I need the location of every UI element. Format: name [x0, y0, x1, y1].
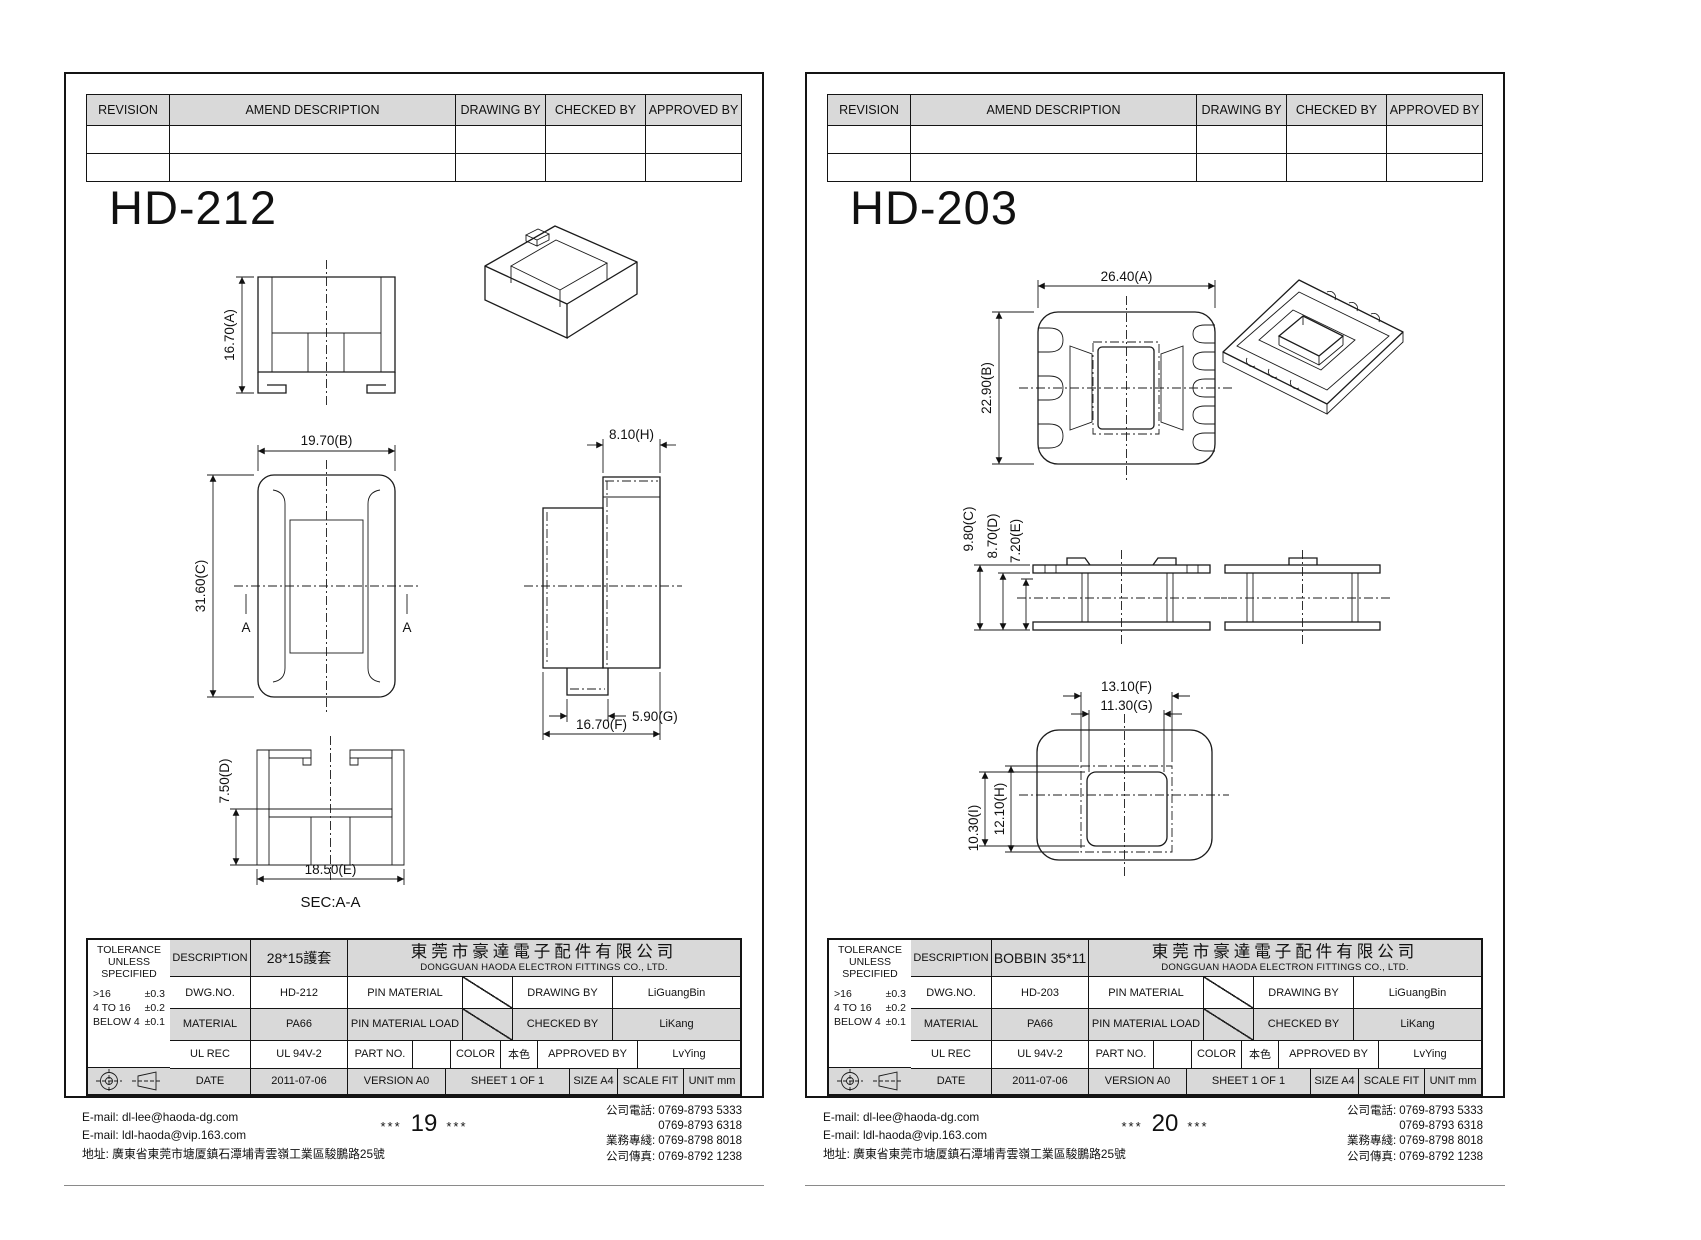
phone-block: 公司電話:0769-8793 5333 0769-8793 6318 業務專綫:…: [606, 1104, 742, 1165]
page-number: *** 20 ***: [1055, 1110, 1275, 1138]
dim-label-c: 9.80(C): [961, 506, 976, 551]
part-no-label: PART NO.: [347, 1041, 412, 1068]
page-bottom-edge: [805, 1185, 1505, 1186]
drawing-by-value: LiGuangBin: [1353, 977, 1481, 1008]
dwg-no-value: HD-203: [991, 977, 1088, 1008]
title-block: TOLERANCE UNLESS SPECIFIED >16±0.3 4 TO …: [827, 938, 1483, 1096]
pin-load-diagonal-cell: [462, 1009, 512, 1040]
version-cell: VERSION A0: [1088, 1069, 1186, 1094]
approved-by-label: APPROVED BY: [537, 1041, 637, 1068]
revision-table: REVISION AMEND DESCRIPTION DRAWING BY CH…: [827, 94, 1483, 182]
revision-empty-cell: [87, 125, 169, 153]
revision-empty-cell: [828, 153, 910, 181]
ul-rec-value: UL 94V-2: [250, 1041, 347, 1068]
projection-cone-icon: [130, 1069, 164, 1093]
color-value: 本色: [1241, 1041, 1278, 1068]
page-footer: E-mail: dl-lee@haoda-dg.com E-mail: ldl-…: [805, 1104, 1505, 1182]
section-label: SEC:A-A: [300, 894, 360, 911]
ul-rec-label: UL REC: [170, 1041, 250, 1068]
side-view-1: 9.80(C) 8.70(D) 7.20(E): [961, 506, 1227, 646]
size-cell: SIZE A4: [569, 1069, 617, 1094]
title-block: TOLERANCE UNLESS SPECIFIED >16±0.3 4 TO …: [86, 938, 742, 1096]
pin-material-label: PIN MATERIAL: [1088, 977, 1203, 1008]
dim-label-e: 7.20(E): [1008, 519, 1023, 563]
dim-label-f: 16.70(F): [576, 717, 627, 732]
isometric-view: [1223, 280, 1403, 414]
approved-by-label: APPROVED BY: [1278, 1041, 1378, 1068]
dim-label-g: 11.30(G): [1100, 698, 1152, 713]
section-marker-a-right: A: [402, 620, 411, 635]
dim-label-h: 12.10(H): [992, 783, 1007, 836]
dim-label-e: 18.50(E): [305, 862, 357, 877]
company-cell: 東莞市豪達電子配件有限公司 DONGGUAN HAODA ELECTRON FI…: [1088, 940, 1481, 976]
technical-drawing-hd212: 16.70(A) A A 19.70(B) 31.60(C): [86, 188, 742, 938]
revision-header-cell: REVISION: [87, 95, 169, 125]
side-view-2: [1211, 550, 1393, 646]
company-name-en: DONGGUAN HAODA ELECTRON FITTINGS CO., LT…: [1161, 962, 1409, 973]
company-name-cn: 東莞市豪達電子配件有限公司: [411, 943, 678, 962]
top-view: 26.40(A) 22.90(B): [979, 269, 1233, 480]
pin-load-diagonal-cell: [1203, 1009, 1253, 1040]
dim-label-h: 8.10(H): [609, 427, 654, 442]
color-label: COLOR: [450, 1041, 500, 1068]
revision-header-cell: CHECKED BY: [1286, 95, 1386, 125]
page-number: *** 19 ***: [314, 1110, 534, 1138]
projection-target-icon: [94, 1069, 124, 1093]
approved-by-value: LvYing: [637, 1041, 740, 1068]
scale-cell: SCALE FIT: [617, 1069, 683, 1094]
dim-label-b: 22.90(B): [979, 362, 994, 414]
technical-drawing-hd203: 26.40(A) 22.90(B) 9.80(C) 8.70(D) 7.: [827, 188, 1483, 938]
dim-label-f: 13.10(F): [1101, 679, 1152, 694]
approved-by-value: LvYing: [1378, 1041, 1481, 1068]
material-value: PA66: [250, 1009, 347, 1040]
dim-label-b: 19.70(B): [301, 433, 353, 448]
pin-material-load-label: PIN MATERIAL LOAD: [347, 1009, 462, 1040]
pin-material-diagonal-cell: [462, 977, 512, 1008]
description-label: DESCRIPTION: [911, 940, 991, 976]
projection-cone-icon: [871, 1069, 905, 1093]
pin-material-diagonal-cell: [1203, 977, 1253, 1008]
revision-empty-cell: [87, 153, 169, 181]
scale-cell: SCALE FIT: [1358, 1069, 1424, 1094]
version-cell: VERSION A0: [347, 1069, 445, 1094]
part-no-value: [1153, 1041, 1191, 1068]
projection-target-icon: [835, 1069, 865, 1093]
drawing-by-value: LiGuangBin: [612, 977, 740, 1008]
revision-header-cell: DRAWING BY: [1196, 95, 1286, 125]
checked-by-value: LiKang: [1353, 1009, 1481, 1040]
address-line: 地址: 廣東省東莞市塘厦鎮石潭埔青雲嶺工業區駿鵬路25號: [82, 1145, 385, 1163]
date-value: 2011-07-06: [250, 1069, 347, 1094]
tolerance-cell: TOLERANCE UNLESS SPECIFIED >16±0.3 4 TO …: [88, 940, 170, 1067]
dim-label-d: 8.70(D): [985, 513, 1000, 558]
sheet-cell: SHEET 1 OF 1: [445, 1069, 569, 1094]
company-cell: 東莞市豪達電子配件有限公司 DONGGUAN HAODA ELECTRON FI…: [347, 940, 740, 976]
section-view: 7.50(D) 18.50(E) SEC:A-A: [217, 736, 404, 911]
material-label: MATERIAL: [170, 1009, 250, 1040]
ul-rec-value: UL 94V-2: [991, 1041, 1088, 1068]
front-view: 16.70(A): [222, 260, 395, 406]
drawing-by-label: DRAWING BY: [1253, 977, 1353, 1008]
date-value: 2011-07-06: [991, 1069, 1088, 1094]
revision-header-cell: DRAWING BY: [455, 95, 545, 125]
sheet-cell: SHEET 1 OF 1: [1186, 1069, 1310, 1094]
drawing-by-label: DRAWING BY: [512, 977, 612, 1008]
revision-header-cell: AMEND DESCRIPTION: [910, 95, 1196, 125]
revision-header-cell: APPROVED BY: [645, 95, 741, 125]
description-value: BOBBIN 35*11: [991, 940, 1088, 976]
date-label: DATE: [911, 1069, 991, 1094]
part-no-label: PART NO.: [1088, 1041, 1153, 1068]
plan-view: A A 19.70(B) 31.60(C): [193, 433, 419, 712]
description-value: 28*15護套: [250, 940, 347, 976]
checked-by-value: LiKang: [612, 1009, 740, 1040]
drawing-sheet-hd212: REVISION AMEND DESCRIPTION DRAWING BY CH…: [64, 72, 764, 1202]
revision-header-cell: AMEND DESCRIPTION: [169, 95, 455, 125]
side-view: 8.10(H) 5.90(G) 16.70(F): [524, 427, 682, 740]
material-label: MATERIAL: [911, 1009, 991, 1040]
ul-rec-label: UL REC: [911, 1041, 991, 1068]
drawing-sheet-hd203: REVISION AMEND DESCRIPTION DRAWING BY CH…: [805, 72, 1505, 1202]
scanned-drawing-pages: REVISION AMEND DESCRIPTION DRAWING BY CH…: [0, 0, 1701, 1240]
dim-label-i: 10.30(I): [966, 805, 981, 852]
dwg-no-label: DWG.NO.: [911, 977, 991, 1008]
dwg-no-value: HD-212: [250, 977, 347, 1008]
page-footer: E-mail: dl-lee@haoda-dg.com E-mail: ldl-…: [64, 1104, 764, 1182]
material-value: PA66: [991, 1009, 1088, 1040]
checked-by-label: CHECKED BY: [1253, 1009, 1353, 1040]
pin-material-label: PIN MATERIAL: [347, 977, 462, 1008]
dim-label-c: 31.60(C): [193, 560, 208, 613]
dwg-no-label: DWG.NO.: [170, 977, 250, 1008]
tolerance-cell: TOLERANCE UNLESS SPECIFIED >16±0.3 4 TO …: [829, 940, 911, 1067]
revision-empty-cell: [828, 125, 910, 153]
revision-header-cell: CHECKED BY: [545, 95, 645, 125]
revision-header-cell: REVISION: [828, 95, 910, 125]
revision-table: REVISION AMEND DESCRIPTION DRAWING BY CH…: [86, 94, 742, 182]
projection-symbols-cell: [829, 1067, 911, 1094]
tolerance-title: TOLERANCE UNLESS SPECIFIED: [834, 944, 906, 980]
phone-block: 公司電話:0769-8793 5333 0769-8793 6318 業務專綫:…: [1347, 1104, 1483, 1165]
dim-label-d: 7.50(D): [217, 758, 232, 803]
pin-material-load-label: PIN MATERIAL LOAD: [1088, 1009, 1203, 1040]
page-bottom-edge: [64, 1185, 764, 1186]
dim-label-a: 26.40(A): [1101, 269, 1153, 284]
date-label: DATE: [170, 1069, 250, 1094]
unit-cell: UNIT mm: [683, 1069, 740, 1094]
projection-symbols-cell: [88, 1067, 170, 1094]
revision-header-cell: APPROVED BY: [1386, 95, 1482, 125]
size-cell: SIZE A4: [1310, 1069, 1358, 1094]
bottom-view: 13.10(F) 11.30(G) 12.10(H) 10.30(I): [966, 679, 1229, 876]
section-marker-a-left: A: [241, 620, 250, 635]
address-line: 地址: 廣東省東莞市塘厦鎮石潭埔青雲嶺工業區駿鵬路25號: [823, 1145, 1126, 1163]
tolerance-title: TOLERANCE UNLESS SPECIFIED: [93, 944, 165, 980]
checked-by-label: CHECKED BY: [512, 1009, 612, 1040]
company-name-en: DONGGUAN HAODA ELECTRON FITTINGS CO., LT…: [420, 962, 668, 973]
isometric-view: [485, 226, 637, 338]
part-no-value: [412, 1041, 450, 1068]
description-label: DESCRIPTION: [170, 940, 250, 976]
dim-label-a: 16.70(A): [222, 309, 237, 361]
dim-label-g: 5.90(G): [632, 709, 678, 724]
unit-cell: UNIT mm: [1424, 1069, 1481, 1094]
company-name-cn: 東莞市豪達電子配件有限公司: [1152, 943, 1419, 962]
color-label: COLOR: [1191, 1041, 1241, 1068]
color-value: 本色: [500, 1041, 537, 1068]
